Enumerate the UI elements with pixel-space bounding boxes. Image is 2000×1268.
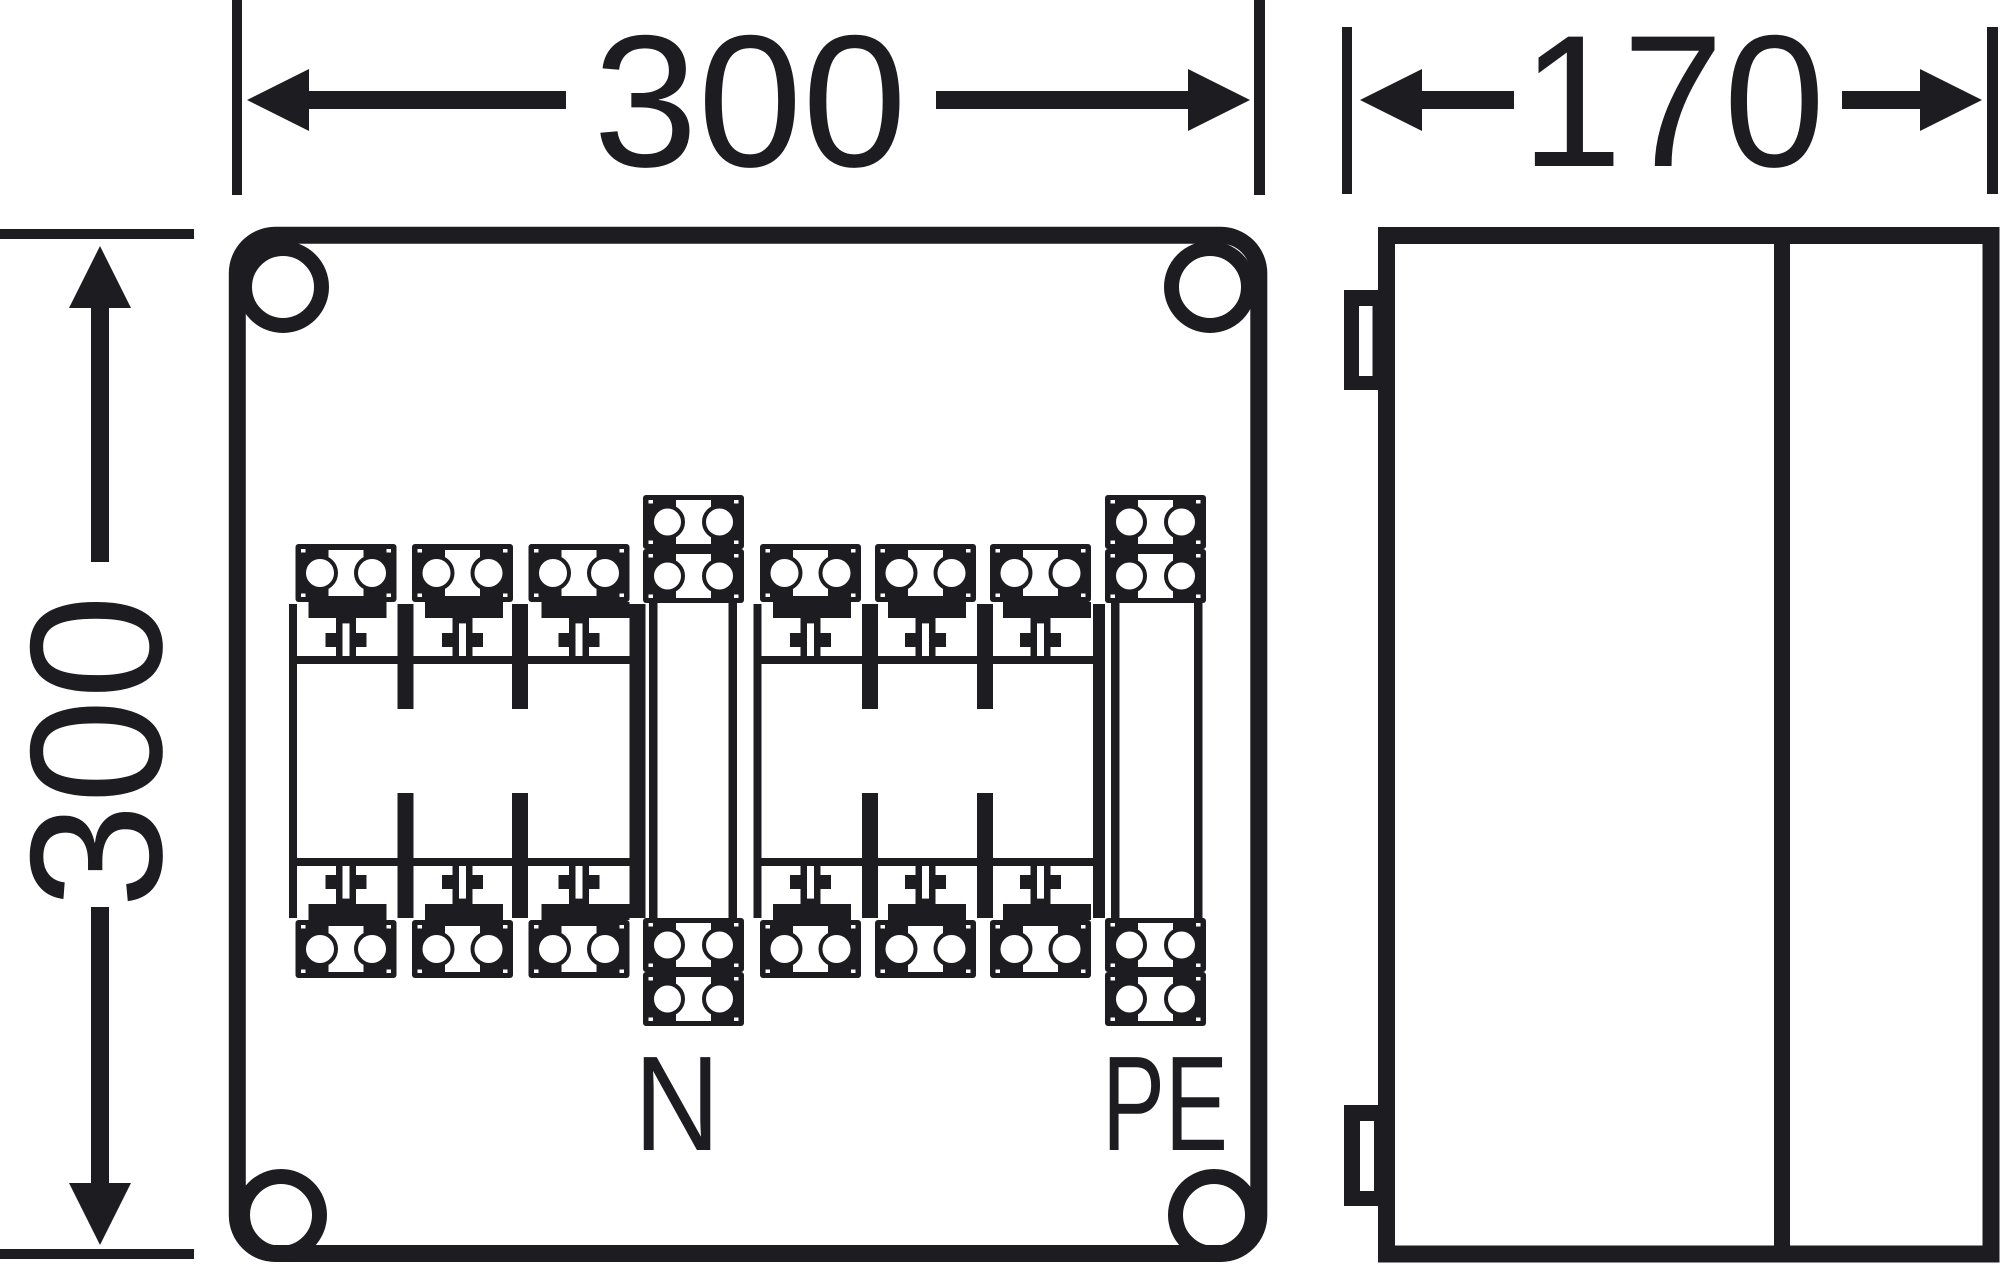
svg-text:300: 300 xyxy=(0,595,201,909)
svg-text:300: 300 xyxy=(593,0,907,206)
svg-text:170: 170 xyxy=(1521,0,1825,206)
svg-text:PE: PE xyxy=(1102,1028,1228,1179)
svg-text:N: N xyxy=(634,1028,720,1179)
